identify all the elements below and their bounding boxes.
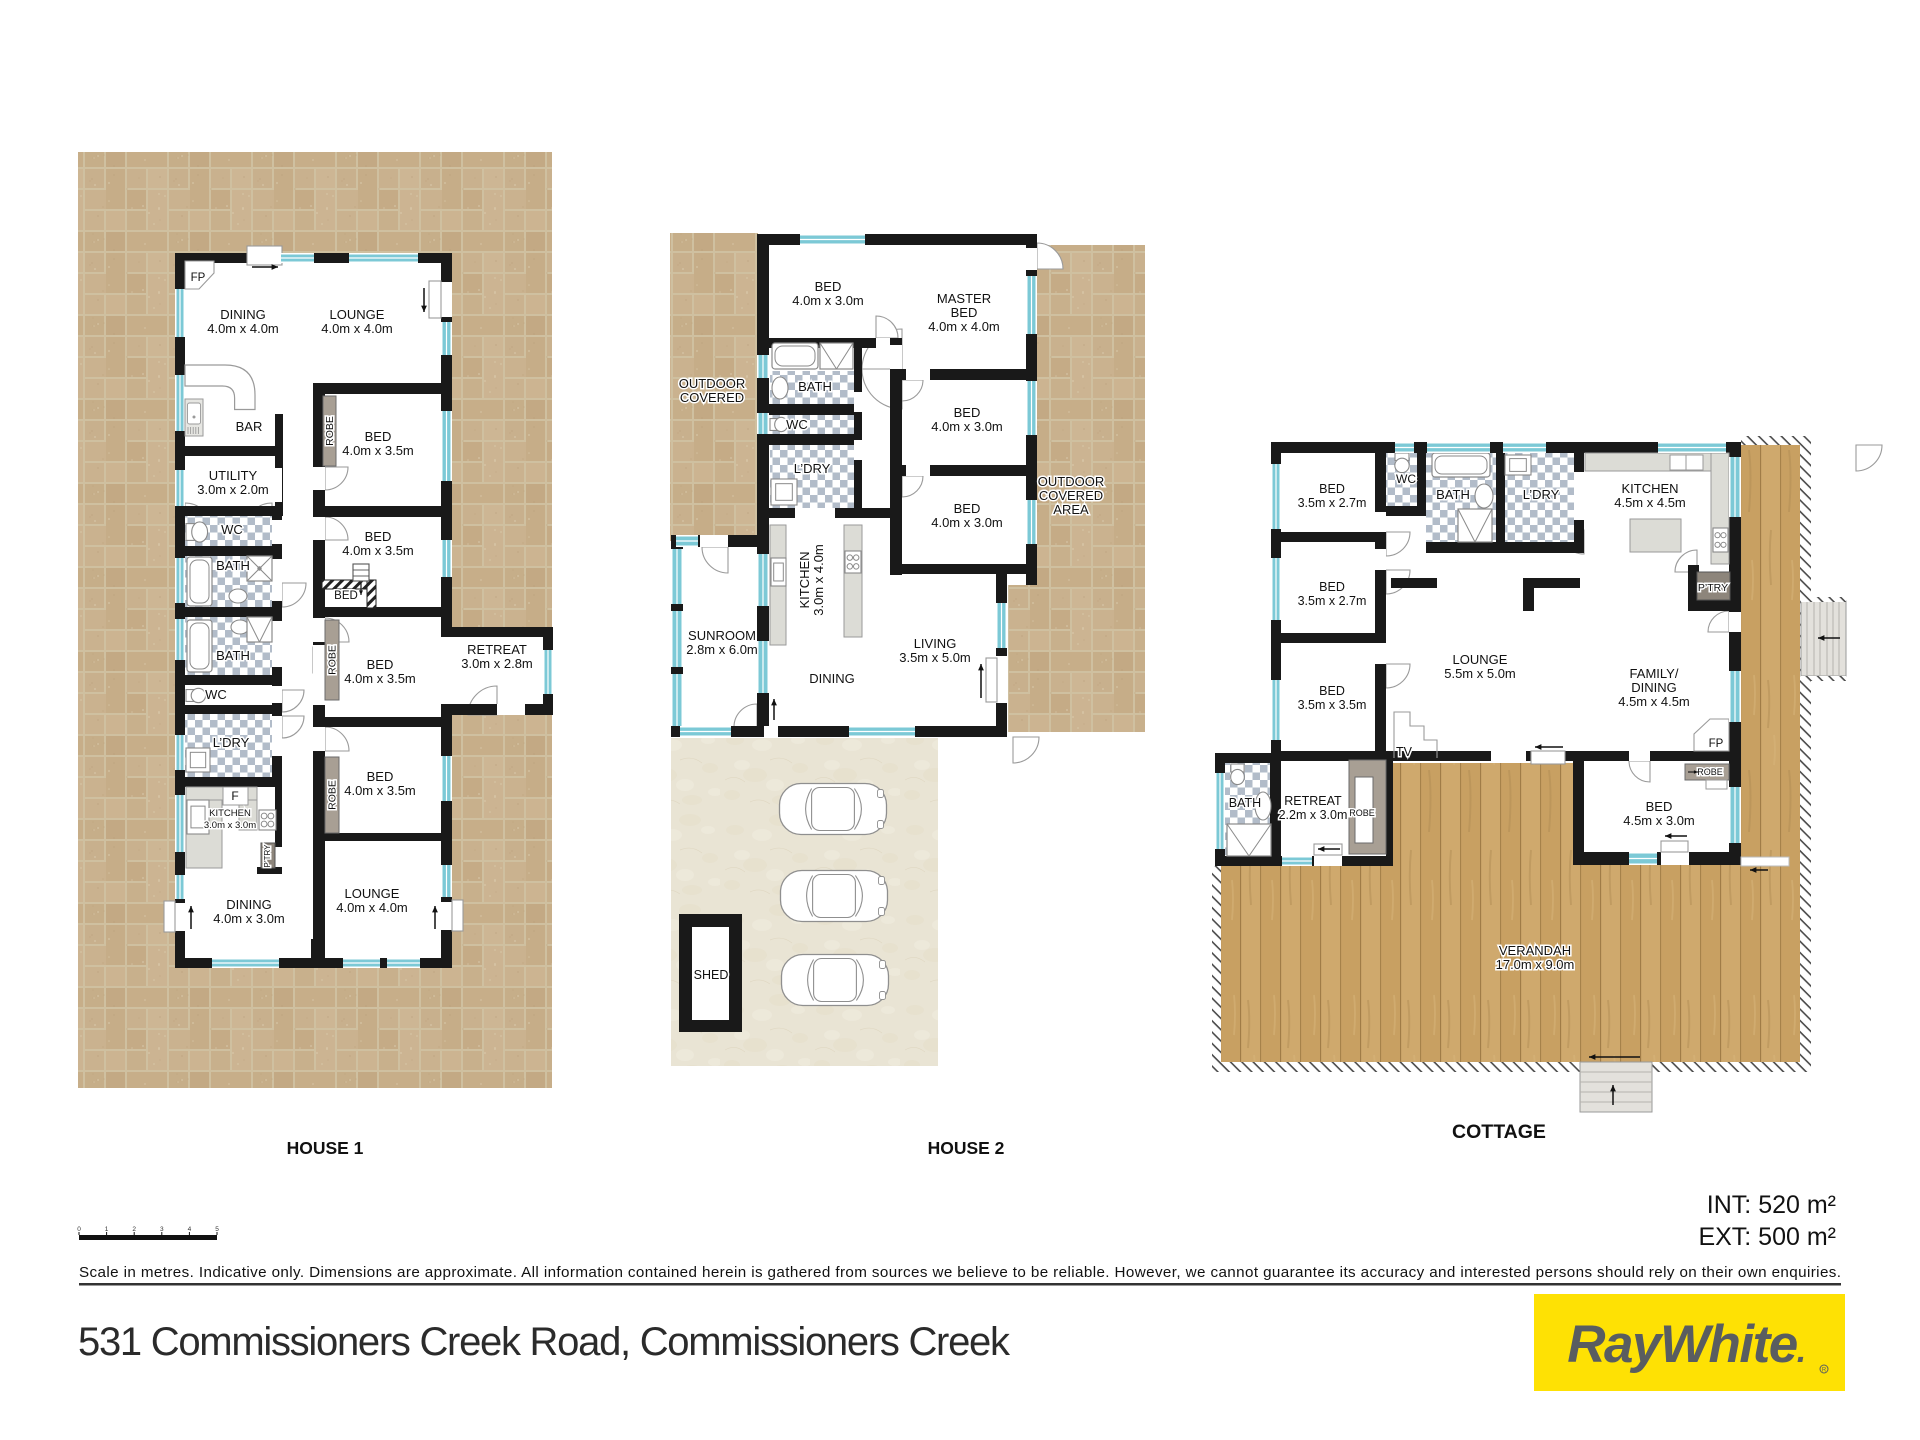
svg-text:ROBE: ROBE: [327, 780, 339, 810]
svg-text:2: 2: [132, 1226, 136, 1233]
svg-text:KITCHEN: KITCHEN: [1621, 481, 1678, 496]
svg-text:BED: BED: [815, 279, 842, 294]
svg-text:3.0m x 2.8m: 3.0m x 2.8m: [461, 656, 533, 671]
svg-text:BATH: BATH: [1436, 487, 1470, 502]
svg-text:4.5m x 4.5m: 4.5m x 4.5m: [1618, 694, 1690, 709]
svg-text:BATH: BATH: [798, 379, 832, 394]
svg-text:3.0m x 3.0m: 3.0m x 3.0m: [204, 820, 256, 831]
svg-text:0: 0: [77, 1226, 81, 1233]
svg-text:4.0m x 3.5m: 4.0m x 3.5m: [342, 443, 414, 458]
svg-text:UTILITY: UTILITY: [209, 468, 258, 483]
svg-text:WC: WC: [205, 687, 227, 702]
svg-text:BATH: BATH: [1229, 796, 1261, 810]
svg-text:BAR: BAR: [236, 419, 263, 434]
svg-text:2.8m x 6.0m: 2.8m x 6.0m: [686, 642, 758, 657]
svg-text:4.0m x 4.0m: 4.0m x 4.0m: [336, 900, 408, 915]
svg-text:P’TRY: P’TRY: [1698, 582, 1728, 594]
svg-text:P’TRY: P’TRY: [263, 844, 272, 868]
svg-text:COVERED: COVERED: [1039, 488, 1103, 503]
svg-text:3.0m x 4.0m: 3.0m x 4.0m: [811, 544, 826, 616]
svg-text:4.0m x 4.0m: 4.0m x 4.0m: [321, 321, 393, 336]
svg-text:5.5m x 5.0m: 5.5m x 5.0m: [1444, 666, 1516, 681]
svg-text:F: F: [231, 789, 238, 803]
svg-text:RETREAT: RETREAT: [467, 642, 527, 657]
svg-text:4.0m x 3.5m: 4.0m x 3.5m: [344, 671, 416, 686]
svg-text:3.5m x 2.7m: 3.5m x 2.7m: [1298, 496, 1367, 510]
svg-text:TV: TV: [1396, 745, 1413, 759]
svg-text:3.0m x 2.0m: 3.0m x 2.0m: [197, 482, 269, 497]
svg-text:BED: BED: [1319, 482, 1345, 496]
svg-text:LIVING: LIVING: [914, 636, 957, 651]
svg-text:WC: WC: [1396, 472, 1416, 486]
svg-text:BED: BED: [334, 590, 358, 602]
svg-text:4: 4: [188, 1226, 192, 1233]
svg-text:WC: WC: [786, 417, 808, 432]
svg-text:FP: FP: [1709, 738, 1724, 750]
svg-text:BED: BED: [365, 429, 392, 444]
svg-text:KITCHEN: KITCHEN: [209, 808, 251, 819]
svg-text:RETREAT: RETREAT: [1284, 794, 1342, 808]
svg-text:Scale in metres. Indicative on: Scale in metres. Indicative only. Dimens…: [79, 1264, 1841, 1281]
svg-text:4.0m x 4.0m: 4.0m x 4.0m: [928, 319, 1000, 334]
svg-text:FAMILY/: FAMILY/: [1630, 666, 1679, 681]
svg-text:4.0m x 3.0m: 4.0m x 3.0m: [931, 419, 1003, 434]
svg-text:2.2m x 3.0m: 2.2m x 3.0m: [1279, 808, 1348, 822]
svg-text:3.5m x 5.0m: 3.5m x 5.0m: [899, 650, 971, 665]
svg-text:ROBE: ROBE: [327, 645, 339, 675]
svg-text:KITCHEN: KITCHEN: [797, 551, 812, 608]
svg-text:3: 3: [160, 1226, 164, 1233]
svg-text:LOUNGE: LOUNGE: [1453, 652, 1508, 667]
svg-text:OUTDOOR: OUTDOOR: [679, 376, 745, 391]
svg-text:LOUNGE: LOUNGE: [345, 886, 400, 901]
svg-text:3.5m x 2.7m: 3.5m x 2.7m: [1298, 594, 1367, 608]
svg-text:L’DRY: L’DRY: [213, 735, 250, 750]
svg-text:1: 1: [105, 1226, 109, 1233]
svg-text:DINING: DINING: [809, 671, 855, 686]
svg-text:HOUSE 1: HOUSE 1: [287, 1138, 364, 1158]
svg-text:17.0m x 9.0m: 17.0m x 9.0m: [1496, 957, 1575, 972]
svg-text:4.5m x 4.5m: 4.5m x 4.5m: [1614, 495, 1686, 510]
svg-text:BED: BED: [954, 405, 981, 420]
svg-text:DINING: DINING: [220, 307, 266, 322]
svg-text:WC: WC: [221, 522, 243, 537]
svg-text:5: 5: [215, 1226, 219, 1233]
svg-text:4.0m x 4.0m: 4.0m x 4.0m: [207, 321, 279, 336]
svg-text:4.0m x 3.0m: 4.0m x 3.0m: [213, 911, 285, 926]
svg-text:ROBE: ROBE: [324, 416, 336, 446]
svg-text:DINING: DINING: [1631, 680, 1677, 695]
svg-text:RayWhite.: RayWhite.: [1567, 1315, 1804, 1374]
svg-text:4.0m x 3.0m: 4.0m x 3.0m: [931, 515, 1003, 530]
svg-text:4.0m x 3.5m: 4.0m x 3.5m: [342, 543, 414, 558]
svg-text:3.5m x 3.5m: 3.5m x 3.5m: [1298, 698, 1367, 712]
svg-text:HOUSE 2: HOUSE 2: [928, 1138, 1005, 1158]
svg-text:BED: BED: [954, 501, 981, 516]
svg-text:AREA: AREA: [1053, 502, 1089, 517]
svg-text:4.0m x 3.5m: 4.0m x 3.5m: [344, 783, 416, 798]
svg-text:531 Commissioners Creek Road,: 531 Commissioners Creek Road, Commission…: [78, 1320, 1011, 1364]
svg-text:BED: BED: [365, 529, 392, 544]
svg-text:BED: BED: [1319, 580, 1345, 594]
svg-text:COVERED: COVERED: [680, 390, 744, 405]
svg-text:COTTAGE: COTTAGE: [1452, 1121, 1546, 1143]
svg-text:BED: BED: [367, 657, 394, 672]
svg-text:4.0m x 3.0m: 4.0m x 3.0m: [792, 293, 864, 308]
svg-text:4.5m x 3.0m: 4.5m x 3.0m: [1623, 813, 1695, 828]
svg-text:R: R: [1822, 1368, 1827, 1374]
svg-text:BATH: BATH: [216, 558, 250, 573]
svg-text:SUNROOM: SUNROOM: [688, 628, 756, 643]
svg-text:DINING: DINING: [226, 897, 272, 912]
svg-text:BED: BED: [1319, 684, 1345, 698]
svg-text:BED: BED: [951, 305, 978, 320]
svg-text:BATH: BATH: [216, 648, 250, 663]
svg-text:LOUNGE: LOUNGE: [330, 307, 385, 322]
svg-text:BED: BED: [367, 769, 394, 784]
svg-text:INT: 520 m²: INT: 520 m²: [1707, 1191, 1836, 1219]
svg-text:EXT: 500 m²: EXT: 500 m²: [1698, 1223, 1836, 1251]
svg-text:L’DRY: L’DRY: [1523, 487, 1560, 502]
svg-text:OUTDOOR: OUTDOOR: [1038, 474, 1104, 489]
svg-text:ROBE: ROBE: [1697, 767, 1723, 777]
svg-text:MASTER: MASTER: [937, 291, 991, 306]
svg-text:SHED: SHED: [694, 968, 729, 982]
svg-text:BED: BED: [1646, 799, 1673, 814]
svg-text:ROBE: ROBE: [1349, 808, 1375, 818]
svg-text:L’DRY: L’DRY: [794, 461, 831, 476]
svg-text:FP: FP: [191, 272, 206, 284]
svg-text:VERANDAH: VERANDAH: [1499, 943, 1571, 958]
